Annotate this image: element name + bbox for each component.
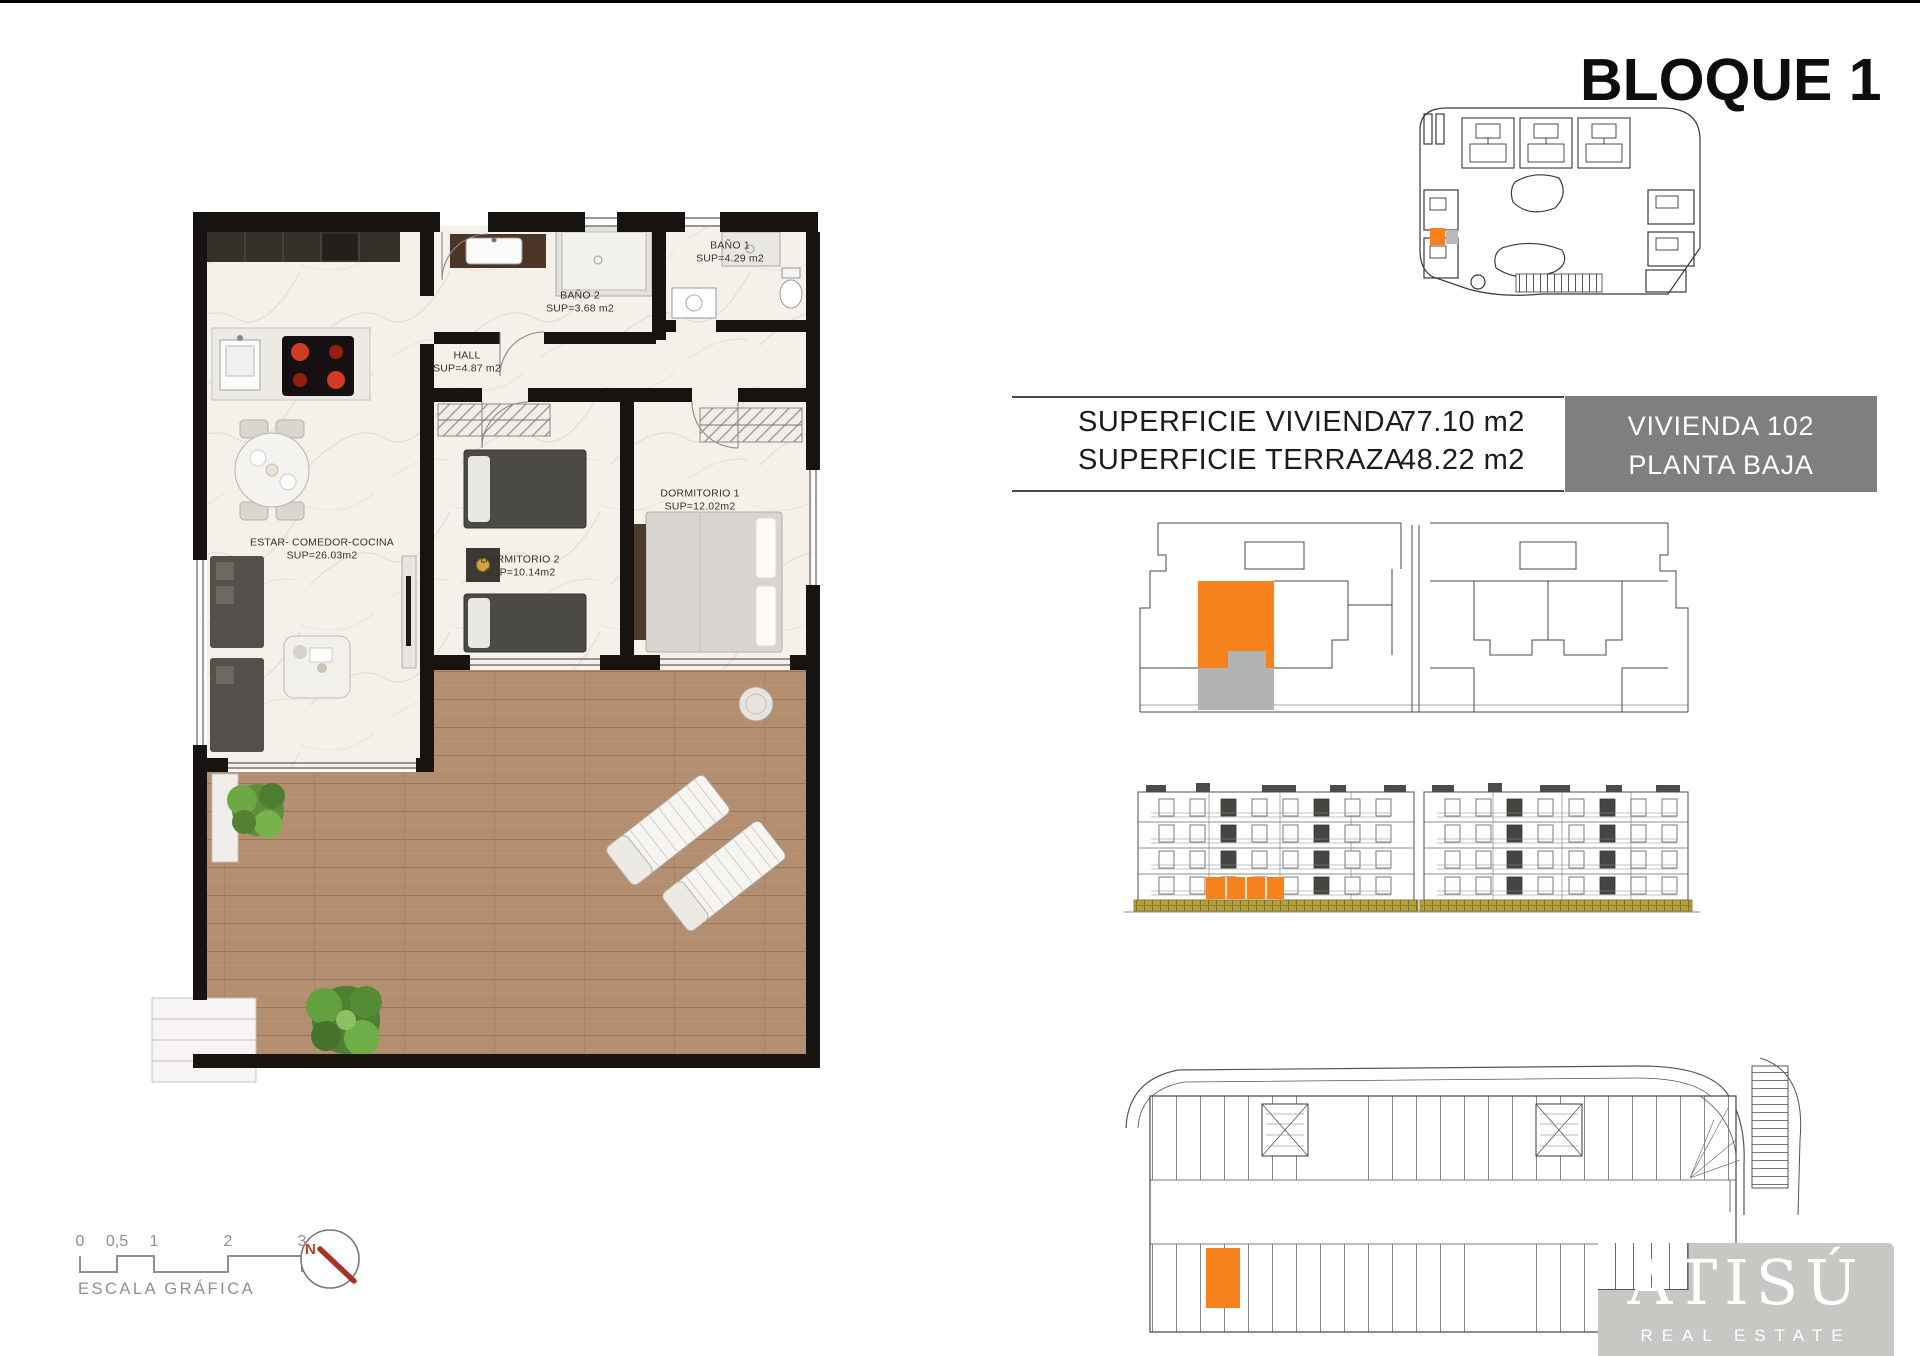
logo-subtitle: REAL ESTATE: [1598, 1326, 1894, 1346]
exterior-steps: [152, 998, 256, 1082]
info-rule-top: [1012, 396, 1564, 398]
highlighted-storage-basement: [1206, 1248, 1240, 1308]
plant: [227, 783, 285, 838]
info-label-terraza: SUPERFICIE TERRAZA: [1078, 444, 1404, 477]
plan-sheet: N BLOQUE 1 SUPERFICIE VIVIENDA 77.10 m2 …: [0, 0, 1920, 1356]
room-label-dorm2: DORMITORIO 2 SUP=10.14m2: [480, 554, 559, 579]
info-value-vivienda: 77.10 m2: [1400, 406, 1525, 439]
floor-key-drawing: [1140, 523, 1688, 712]
plant: [306, 986, 382, 1056]
unit-badge: VIVIENDA 102 PLANTA BAJA: [1565, 396, 1877, 492]
unit-badge-line1: VIVIENDA 102: [1565, 407, 1877, 446]
highlighted-unit-site: [1430, 228, 1445, 245]
elevation-drawings: [1124, 783, 1700, 912]
room-label-estar: ESTAR- COMEDOR-COCINA SUP=26.03m2: [250, 537, 394, 562]
info-label-vivienda: SUPERFICIE VIVIENDA: [1078, 406, 1405, 439]
scale-bar-label: ESCALA GRÁFICA: [78, 1280, 255, 1299]
compass-n-label: N: [305, 1241, 316, 1258]
north-compass-icon: N: [301, 1230, 359, 1288]
room-label-hall: HALL SUP=4.87 m2: [433, 350, 501, 375]
architectural-drawings: N: [0, 0, 1920, 1356]
room-label-dorm1: DORMITORIO 1 SUP=12.02m2: [660, 488, 739, 513]
room-label-bano2: BAÑO 2 SUP=3.68 m2: [546, 290, 614, 315]
scale-tick-0: 0: [76, 1233, 85, 1251]
scale-tick-05: 0,5: [106, 1233, 128, 1251]
info-value-terraza: 48.22 m2: [1400, 444, 1525, 477]
scale-tick-3: 3: [298, 1233, 307, 1251]
unit-badge-line2: PLANTA BAJA: [1565, 446, 1877, 485]
scale-tick-2: 2: [224, 1233, 233, 1251]
site-plan-drawing: [1420, 108, 1700, 295]
logo-name: ATISÚ: [1598, 1246, 1894, 1319]
apartment-floor-plan: [152, 212, 820, 1082]
scale-tick-1: 1: [150, 1233, 159, 1251]
room-label-bano1: BAÑO 1 SUP=4.29 m2: [696, 240, 764, 265]
scale-bar-drawing: [80, 1256, 302, 1272]
highlighted-unit-elevation: [1206, 877, 1284, 899]
info-rule-bottom: [1012, 490, 1564, 492]
